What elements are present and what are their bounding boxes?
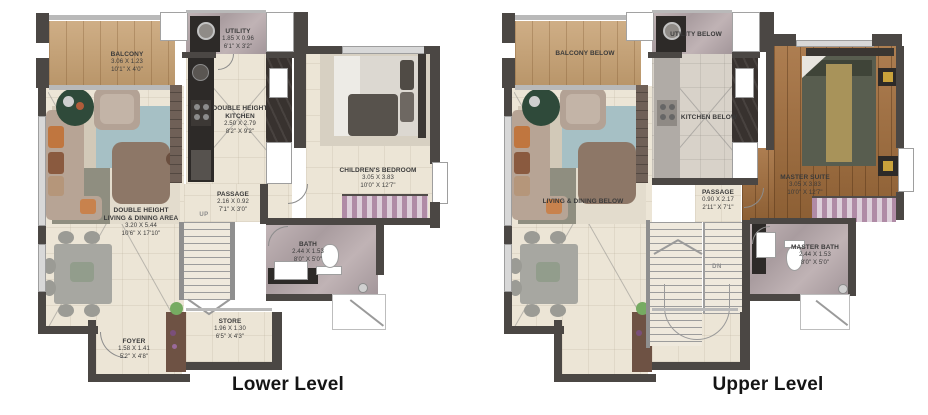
wall xyxy=(554,374,656,382)
wall xyxy=(504,86,512,116)
burner xyxy=(660,104,666,110)
cushion xyxy=(514,152,530,174)
headboard-shelf xyxy=(806,48,894,56)
stairs-down-label: DN xyxy=(707,264,727,270)
caption-upper-level: Upper Level xyxy=(688,374,848,396)
coffee-table xyxy=(522,88,560,126)
coffee-table-plate xyxy=(529,96,540,107)
wall-thin xyxy=(652,10,732,13)
wall xyxy=(742,220,750,348)
dining-chair xyxy=(550,231,566,244)
balcony-rail xyxy=(515,15,641,20)
burner xyxy=(669,104,675,110)
feature-wall xyxy=(636,85,648,183)
wall xyxy=(750,218,848,224)
window xyxy=(504,116,512,226)
nightstand-lamp xyxy=(883,72,893,82)
wall xyxy=(732,52,760,58)
armchair-cushion xyxy=(566,94,600,124)
room-label-utility-below: UTILITY BELOW xyxy=(656,31,736,39)
bay-window xyxy=(800,294,850,330)
window xyxy=(504,244,512,292)
room-label-kitchen-below: KITCHEN BELOW xyxy=(667,114,751,122)
burner xyxy=(660,114,666,120)
wall xyxy=(896,46,904,148)
shower-head-icon xyxy=(838,284,848,294)
nightstand-lamp xyxy=(883,161,893,171)
wall xyxy=(502,58,515,88)
room-label-master-suite: MASTER SUITE 3.05 X 3.83 10'0" X 12'7" xyxy=(770,174,840,197)
window-sill xyxy=(515,85,641,90)
wall xyxy=(766,34,796,46)
bed-runner xyxy=(826,64,852,162)
duct-shaft xyxy=(732,12,760,52)
wall xyxy=(502,13,515,43)
lounge-chair xyxy=(578,142,636,204)
decor-icon xyxy=(636,330,642,336)
room-label-master-bath: MASTER BATH 2.44 X 1.53 8'0" X 5'0" xyxy=(779,244,851,267)
room-label-living-below: LIVING & DINING BELOW xyxy=(522,198,644,206)
kitchen-sink xyxy=(735,68,754,98)
wall xyxy=(896,192,904,220)
room-label-balcony-below: BALCONY BELOW xyxy=(545,50,625,58)
wall xyxy=(648,52,682,58)
window xyxy=(796,40,874,47)
wall xyxy=(652,178,758,185)
wall xyxy=(652,362,748,370)
wall xyxy=(766,46,774,150)
wall-thin xyxy=(652,308,738,311)
wall xyxy=(872,34,902,46)
wall xyxy=(504,226,512,244)
table-centerpiece xyxy=(536,262,560,282)
dining-chair xyxy=(550,304,566,317)
dining-chair xyxy=(524,231,540,244)
wall xyxy=(554,320,562,380)
upper-level-plan: BALCONY BELOW UTILITY BELOW KITCHEN BELO… xyxy=(0,0,928,415)
bay-window xyxy=(898,148,914,192)
floorplan-canvas: BALCONY 3.06 X 1.23 10'1" X 4'0" UTILITY… xyxy=(0,0,928,415)
dining-chair xyxy=(524,304,540,317)
duct-shaft xyxy=(626,12,654,41)
cushion xyxy=(514,176,530,196)
room-label-passage: PASSAGE 0.90 X 2.17 2'11" X 7'1" xyxy=(693,189,743,212)
cushion xyxy=(514,126,530,148)
